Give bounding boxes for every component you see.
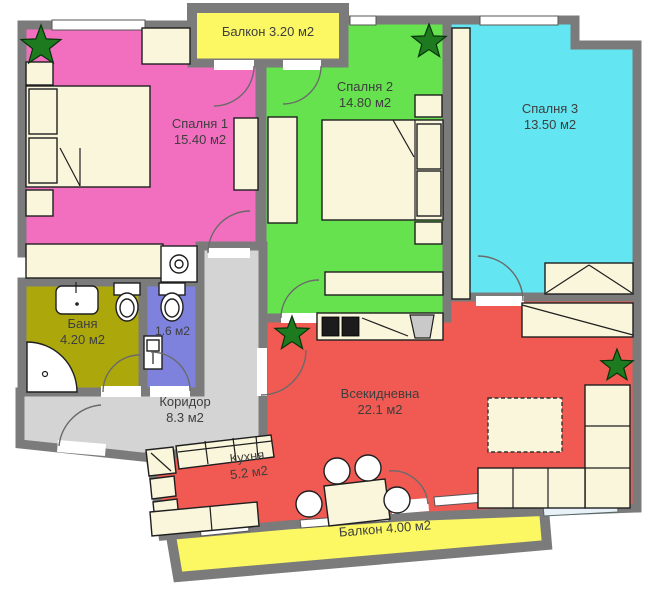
room-bedroom3-floor — [447, 20, 637, 301]
dining-table-icon — [324, 479, 390, 526]
door-opening — [208, 248, 250, 258]
pillow — [29, 89, 57, 134]
nightstand-icon — [26, 190, 53, 216]
corridor-label: Коридор8.3 м2 — [125, 394, 245, 426]
nightstand-icon — [415, 222, 442, 244]
chair-icon — [296, 491, 322, 517]
chair-icon — [384, 487, 410, 513]
pillow — [417, 171, 441, 216]
wc-label: 1.6 м2 — [145, 324, 200, 339]
chair-icon — [355, 455, 381, 481]
bedroom3-label: Спалня 313.50 м2 — [485, 101, 615, 133]
washing-machine-icon — [161, 246, 197, 282]
small-sink-icon — [147, 340, 159, 351]
bedroom1-label: Спалня 115.40 м2 — [130, 116, 270, 148]
drain — [75, 302, 79, 306]
pillow — [417, 124, 441, 169]
bedroom2-label: Спалня 214.80 м2 — [300, 79, 430, 111]
coffee-table-icon — [488, 398, 562, 452]
window — [52, 20, 145, 30]
door-opening — [281, 313, 319, 323]
door-opening — [283, 60, 321, 70]
sofa-icon — [478, 468, 585, 508]
toilet-icon — [120, 299, 134, 317]
door-opening — [214, 60, 254, 70]
pillow — [29, 138, 57, 183]
window — [480, 16, 558, 25]
cabinet-icon — [142, 28, 190, 64]
nightstand-icon — [26, 62, 53, 85]
window — [350, 16, 376, 25]
balcony-top-label: Балкон 3.20 м2 — [197, 24, 339, 40]
cabinet-icon — [325, 272, 443, 295]
bed-icon — [545, 263, 633, 294]
kitchen-cabinet-icon — [150, 476, 176, 499]
tv-icon — [322, 317, 339, 336]
door-opening — [476, 296, 524, 306]
floor-plan: Балкон 3.20 м2 Спалня 115.40 м2 Спалня 2… — [0, 0, 654, 591]
wardrobe-icon — [26, 244, 163, 278]
wardrobe-icon — [452, 28, 470, 299]
chair-icon — [324, 458, 350, 484]
wardrobe-icon — [268, 117, 297, 223]
door-opening — [257, 348, 267, 396]
toilet-icon — [165, 299, 179, 317]
living-room-label: Всекидневна22.1 м2 — [300, 386, 460, 418]
sink-icon — [56, 286, 98, 314]
sofa-icon — [585, 385, 630, 508]
tv-icon — [342, 317, 359, 336]
bathroom-label: Баня4.20 м2 — [40, 316, 125, 348]
